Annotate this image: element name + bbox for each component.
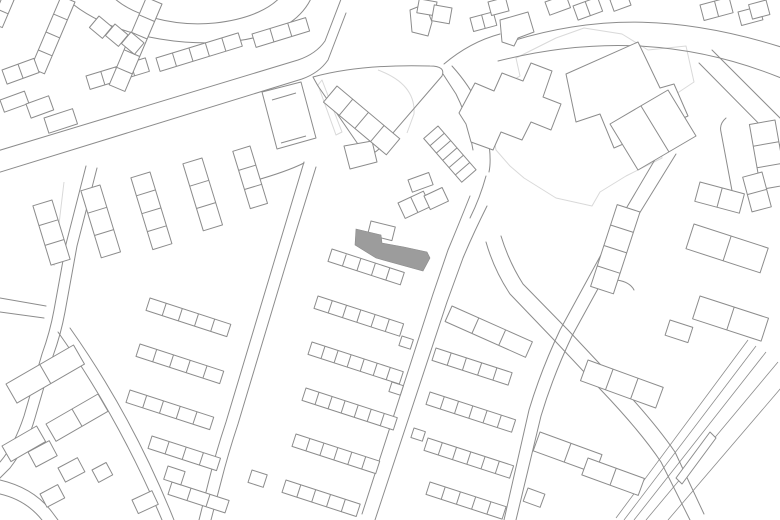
rail-line: [668, 388, 780, 520]
house: [408, 173, 433, 193]
road-edge: [712, 50, 780, 119]
house: [411, 428, 426, 441]
terraced-row: [233, 146, 268, 209]
house: [44, 109, 78, 134]
road-edge: [512, 22, 780, 47]
house: [58, 458, 85, 482]
terraced-row: [31, 0, 75, 74]
road-edge: [0, 298, 46, 306]
building-outline: [344, 141, 377, 169]
building-outline: [500, 12, 534, 46]
house: [2, 58, 39, 84]
rail-line: [634, 352, 766, 520]
terraced-row: [426, 482, 506, 519]
house: [399, 336, 414, 349]
building-outline: [262, 82, 316, 149]
road-edge: [0, 494, 42, 520]
house: [573, 0, 603, 20]
house: [26, 96, 54, 118]
terraced-row: [424, 126, 476, 182]
terraced-row: [183, 158, 223, 231]
house: [700, 0, 733, 20]
house: [389, 382, 404, 395]
road-edge: [617, 280, 634, 290]
terraced-row: [686, 224, 768, 273]
terraced-row: [136, 344, 224, 384]
house: [523, 488, 545, 507]
house: [545, 0, 571, 15]
road-edge: [211, 167, 316, 520]
terraced-row: [252, 18, 310, 48]
house: [432, 5, 453, 24]
terraced-row: [582, 458, 645, 495]
house: [610, 0, 631, 11]
terraced-row: [282, 480, 360, 517]
road-edge: [721, 118, 733, 196]
rail-corridor: [616, 340, 780, 520]
terraced-row: [156, 33, 242, 72]
terraced-row: [445, 306, 532, 357]
terraced-row: [581, 360, 664, 408]
terraced-row: [292, 434, 380, 474]
terraced-row: [131, 172, 172, 250]
terraced-row: [314, 296, 404, 336]
house: [132, 491, 158, 514]
building-outline: [676, 432, 716, 484]
terraced-row: [0, 0, 14, 28]
terraced-row: [591, 205, 640, 294]
terraced-row: [302, 388, 397, 430]
building-outline: [459, 63, 561, 150]
terraced-row: [432, 348, 512, 385]
house: [749, 0, 770, 19]
terraced-row: [81, 185, 121, 258]
road-edge: [0, 312, 44, 318]
house: [164, 466, 185, 485]
house: [248, 470, 267, 487]
site-plan-map: [0, 0, 780, 520]
terraced-row: [6, 345, 85, 403]
site-plan-canvas: [0, 0, 780, 520]
house: [40, 485, 65, 508]
terraced-row: [146, 298, 231, 337]
road-edge: [110, 0, 283, 24]
house: [488, 0, 509, 16]
terraced-row: [424, 438, 514, 478]
terraced-row: [33, 200, 70, 265]
terraced-row: [308, 342, 403, 384]
house: [0, 91, 29, 112]
terraced-row: [693, 296, 769, 341]
road-edge: [444, 34, 500, 64]
terraced-row: [46, 394, 108, 441]
house: [695, 182, 745, 213]
terraced-row: [426, 392, 516, 432]
road-edge: [470, 176, 486, 218]
light-outline: [378, 70, 414, 133]
house: [92, 463, 113, 483]
house: [665, 320, 693, 343]
terraced-row: [148, 436, 221, 471]
terraced-row: [126, 390, 214, 430]
